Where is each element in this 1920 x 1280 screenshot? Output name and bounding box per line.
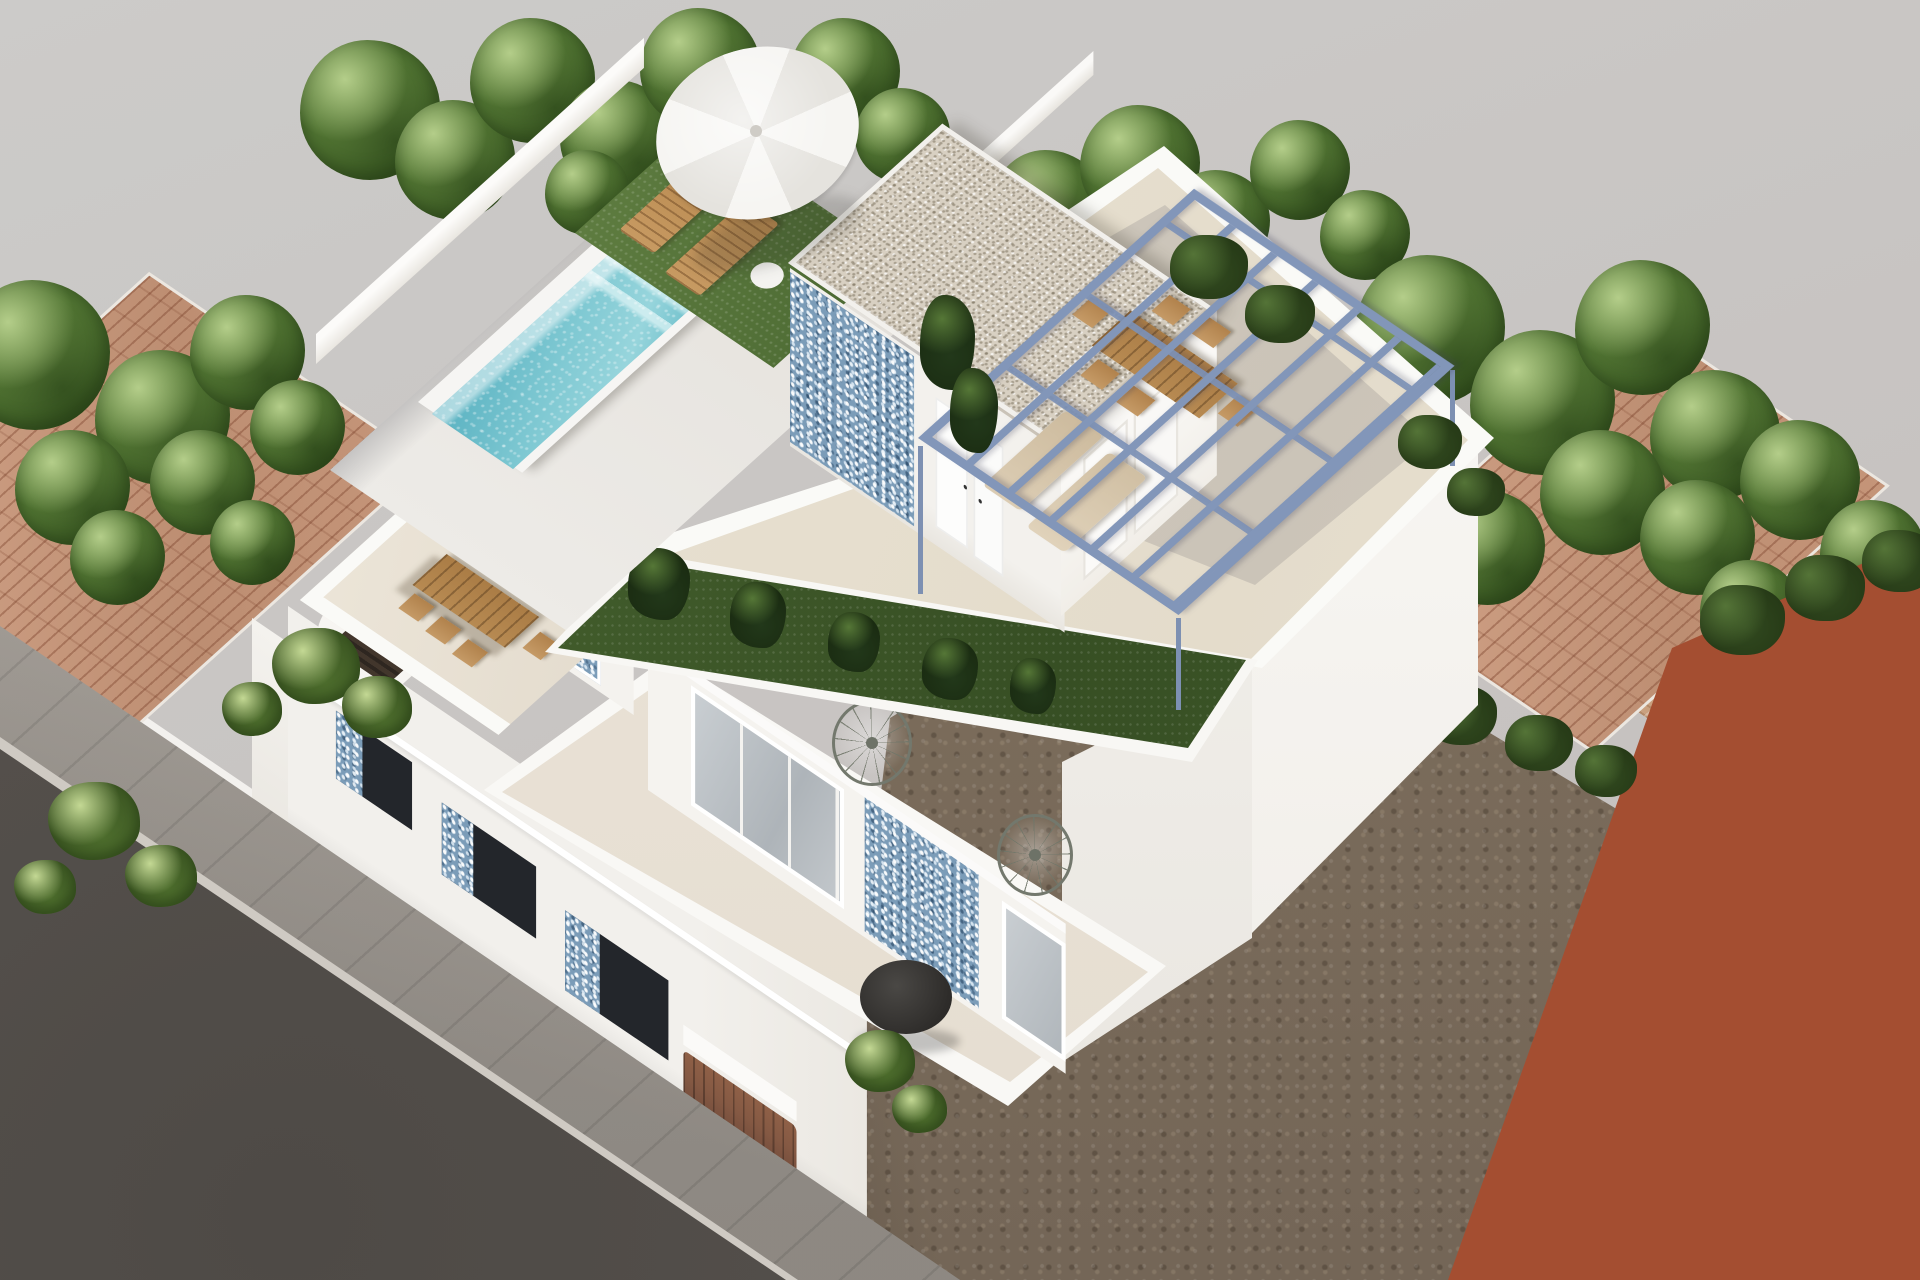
front-garden [0, 0, 1920, 1280]
bush [125, 845, 197, 907]
bush [48, 782, 140, 860]
bush [222, 682, 282, 736]
bush [14, 860, 76, 914]
render-stage [0, 0, 1920, 1280]
bush [342, 676, 412, 738]
